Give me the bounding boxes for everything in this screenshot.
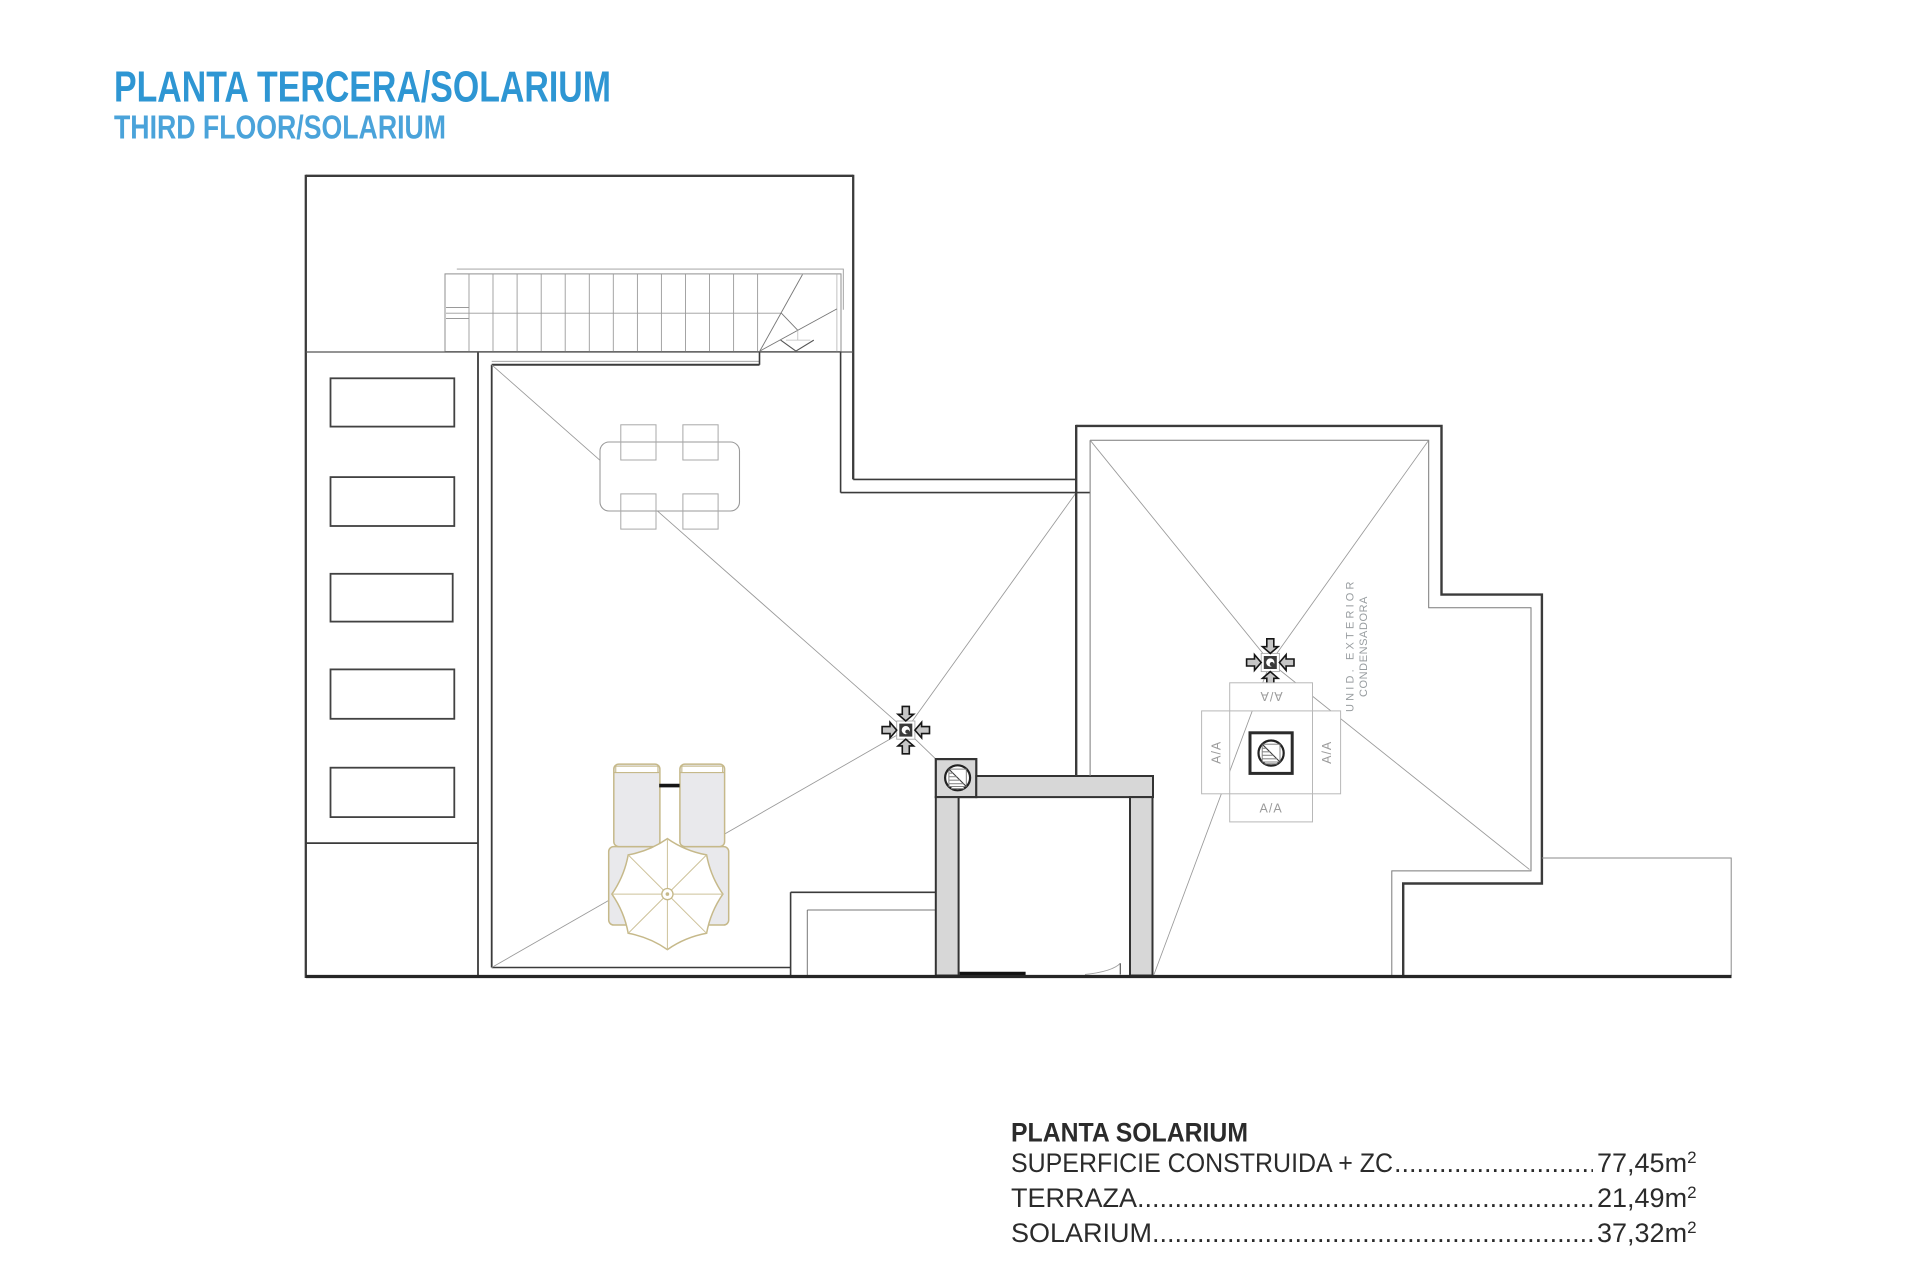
svg-text:A/A: A/A bbox=[1260, 802, 1283, 816]
svg-text:21,49m2: 21,49m2 bbox=[1597, 1183, 1697, 1213]
svg-text:PLANTA SOLARIUM: PLANTA SOLARIUM bbox=[1011, 1118, 1248, 1148]
svg-text:SUPERFICIE CONSTRUIDA + ZC: SUPERFICIE CONSTRUIDA + ZC bbox=[1011, 1148, 1393, 1178]
svg-text:CONDENSADORA: CONDENSADORA bbox=[1358, 594, 1370, 697]
svg-text:UNID. EXTERIOR: UNID. EXTERIOR bbox=[1345, 579, 1357, 712]
svg-text:77,45m2: 77,45m2 bbox=[1597, 1148, 1697, 1178]
svg-text:PLANTA TERCERA/SOLARIUM: PLANTA TERCERA/SOLARIUM bbox=[114, 63, 611, 112]
svg-text:A/A: A/A bbox=[1209, 741, 1223, 764]
svg-text:37,32m2: 37,32m2 bbox=[1597, 1218, 1697, 1248]
svg-text:A/A: A/A bbox=[1260, 689, 1283, 703]
svg-text:THIRD FLOOR/SOLARIUM: THIRD FLOOR/SOLARIUM bbox=[114, 109, 446, 146]
svg-text:A/A: A/A bbox=[1320, 741, 1334, 764]
